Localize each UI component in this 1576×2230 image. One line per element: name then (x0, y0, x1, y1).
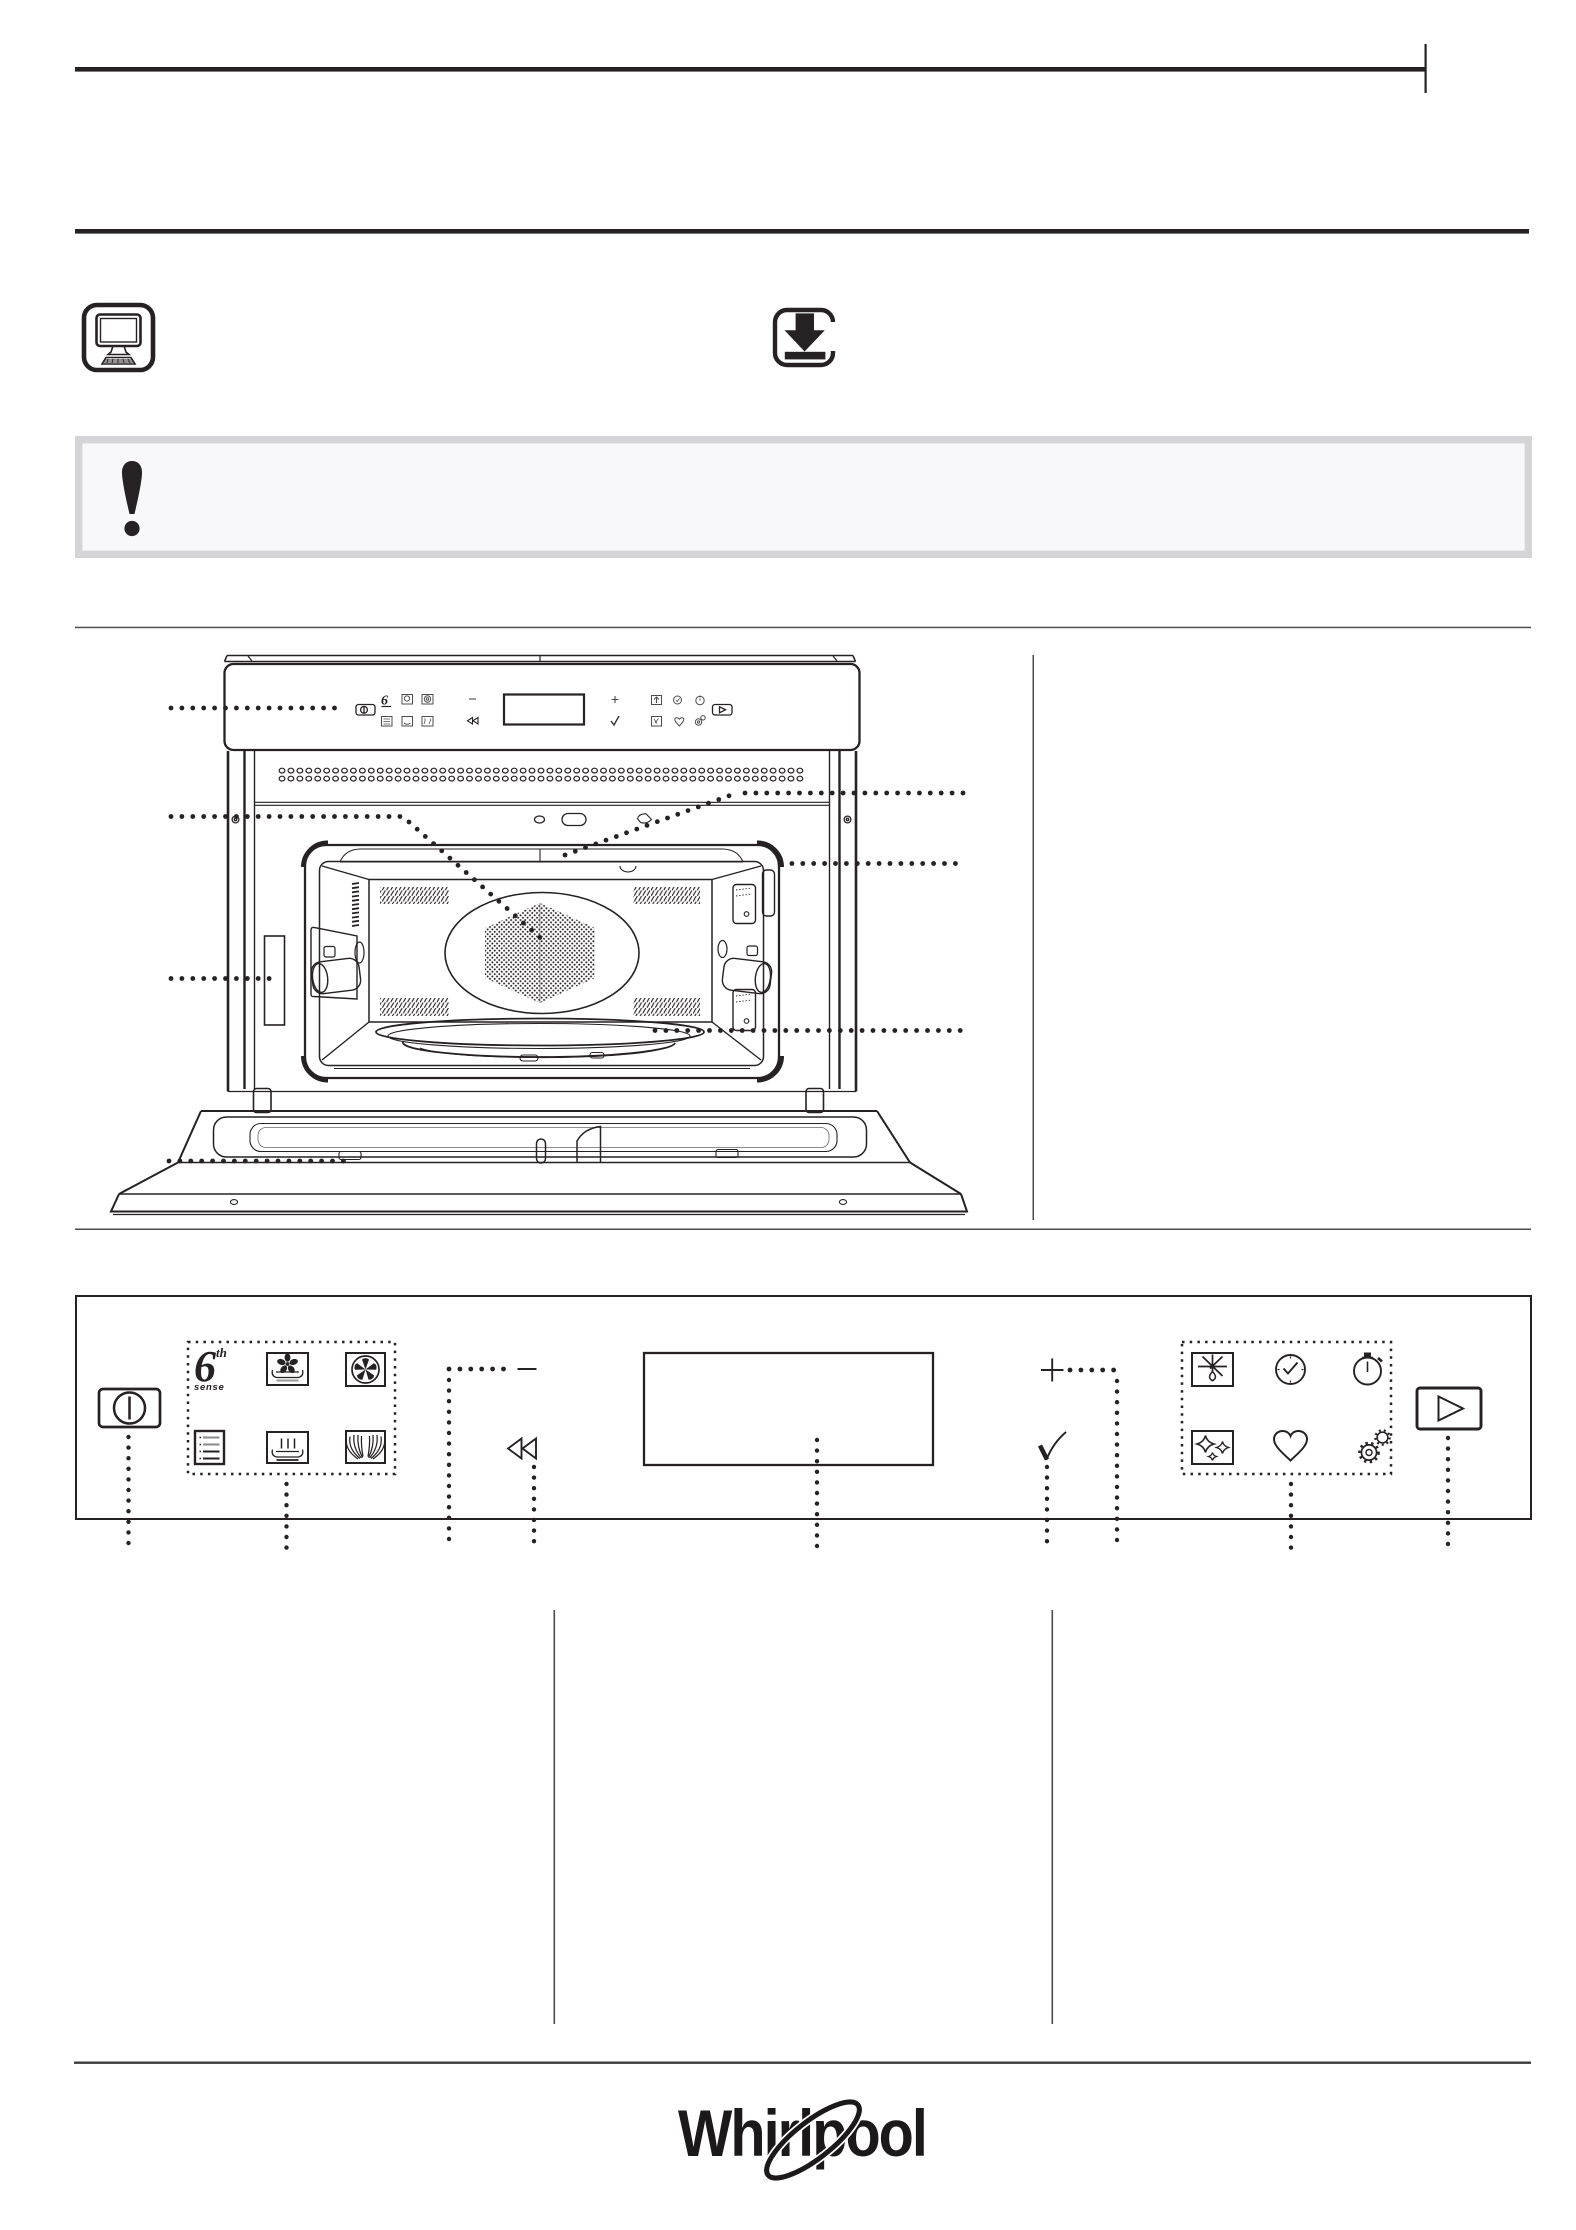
svg-text:sense: sense (194, 1382, 224, 1393)
svg-text:Whirlpool: Whirlpool (678, 2097, 926, 2171)
svg-text:th: th (216, 1345, 227, 1360)
